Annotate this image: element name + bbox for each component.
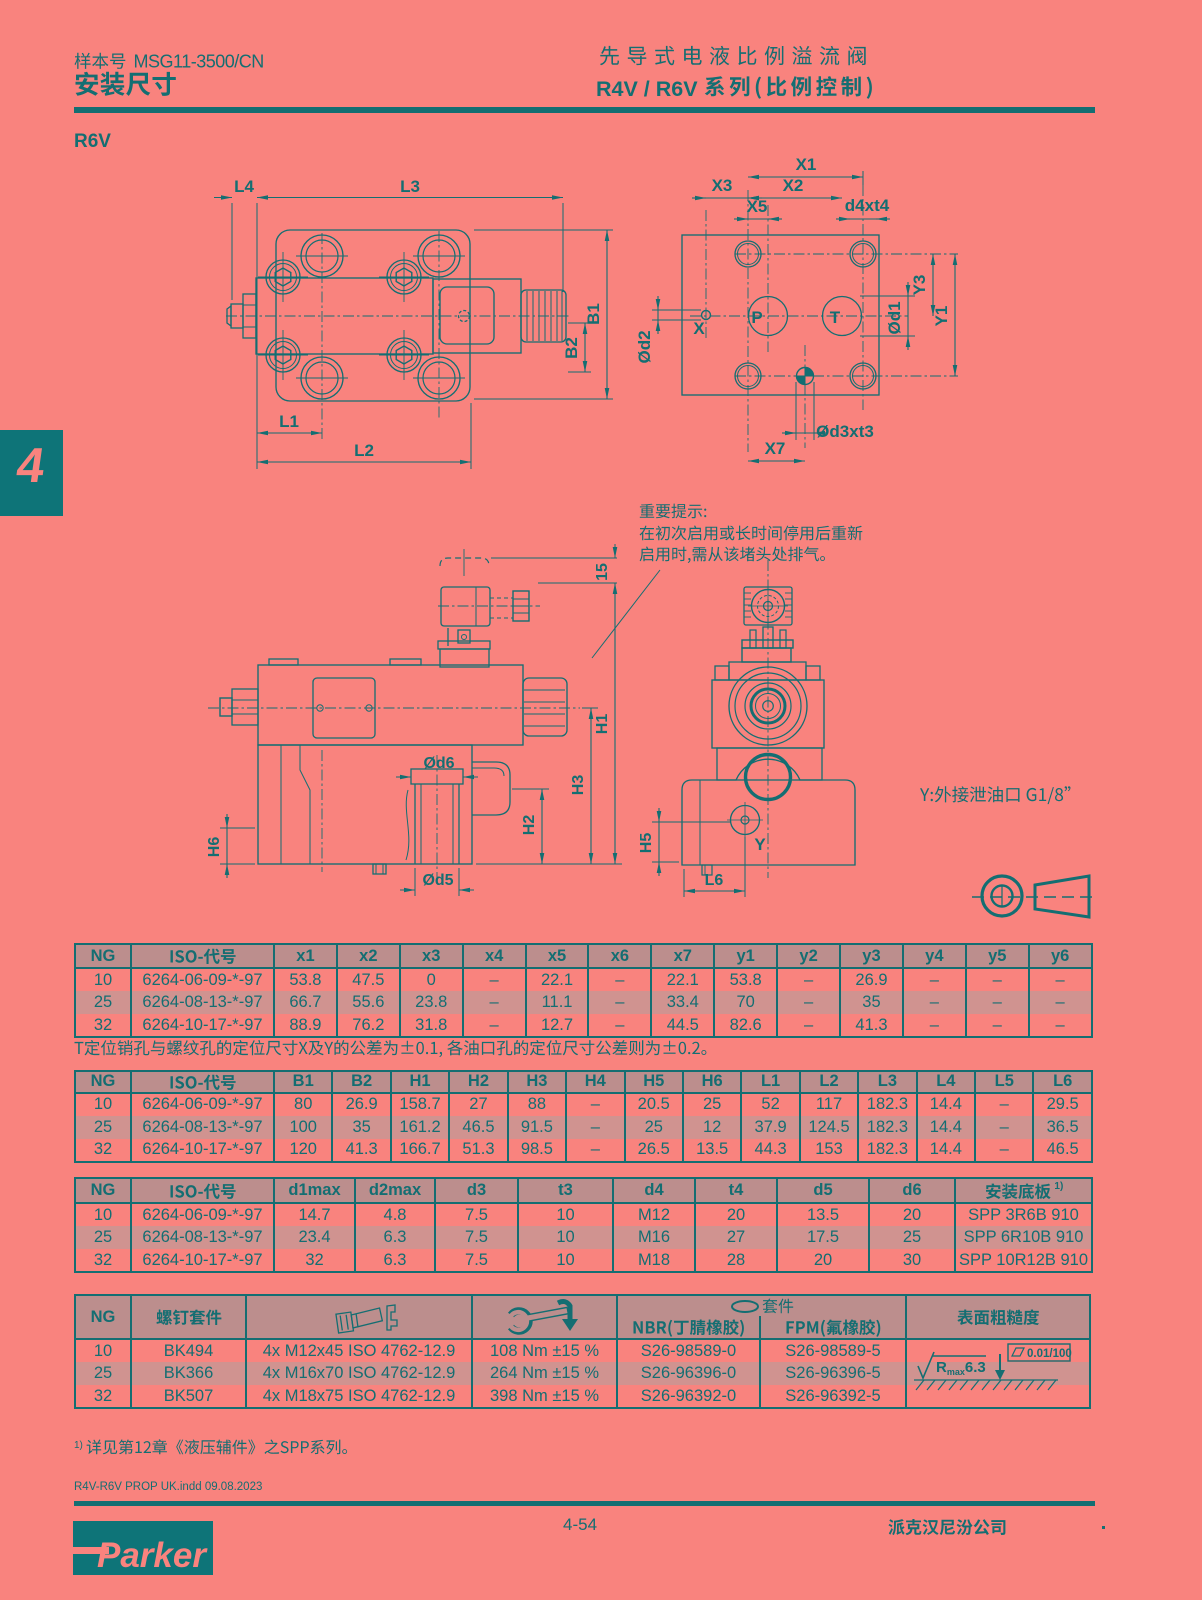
svg-text:X7: X7 bbox=[765, 439, 786, 458]
svg-text:Ød5: Ød5 bbox=[422, 872, 453, 889]
svg-text:L4: L4 bbox=[234, 177, 254, 196]
svg-text:15: 15 bbox=[594, 563, 611, 581]
svg-text:L3: L3 bbox=[400, 177, 420, 196]
svg-text:Parker: Parker bbox=[97, 1536, 208, 1575]
svg-text:P: P bbox=[751, 308, 762, 327]
svg-text:B1: B1 bbox=[584, 303, 603, 325]
svg-text:X: X bbox=[693, 319, 705, 338]
svg-text:H5: H5 bbox=[638, 833, 655, 854]
svg-text:B2: B2 bbox=[562, 337, 581, 359]
svg-text:Y1: Y1 bbox=[932, 306, 951, 327]
svg-text:L1: L1 bbox=[279, 412, 299, 431]
svg-text:Ød2: Ød2 bbox=[635, 330, 654, 363]
svg-text:H2: H2 bbox=[521, 815, 538, 836]
svg-text:H6: H6 bbox=[206, 837, 223, 858]
svg-text:T: T bbox=[830, 308, 841, 327]
svg-text:H3: H3 bbox=[570, 775, 587, 796]
svg-text:Rmax6.3: Rmax6.3 bbox=[936, 1359, 986, 1377]
svg-text:Y: Y bbox=[754, 835, 766, 854]
svg-text:Ød6: Ød6 bbox=[423, 755, 454, 772]
svg-text:X2: X2 bbox=[783, 176, 804, 195]
svg-text:L2: L2 bbox=[354, 441, 374, 460]
svg-text:X3: X3 bbox=[712, 176, 733, 195]
svg-text:H1: H1 bbox=[594, 714, 611, 735]
svg-text:X5: X5 bbox=[747, 197, 768, 216]
svg-text:0.01/100: 0.01/100 bbox=[1027, 1348, 1072, 1360]
svg-text:Ød1: Ød1 bbox=[885, 301, 904, 334]
svg-text:Y3: Y3 bbox=[910, 275, 929, 296]
svg-text:X1: X1 bbox=[796, 155, 817, 174]
svg-text:Ød3xt3: Ød3xt3 bbox=[816, 422, 874, 441]
svg-text:d4xt4: d4xt4 bbox=[845, 196, 890, 215]
svg-text:L6: L6 bbox=[705, 872, 724, 889]
